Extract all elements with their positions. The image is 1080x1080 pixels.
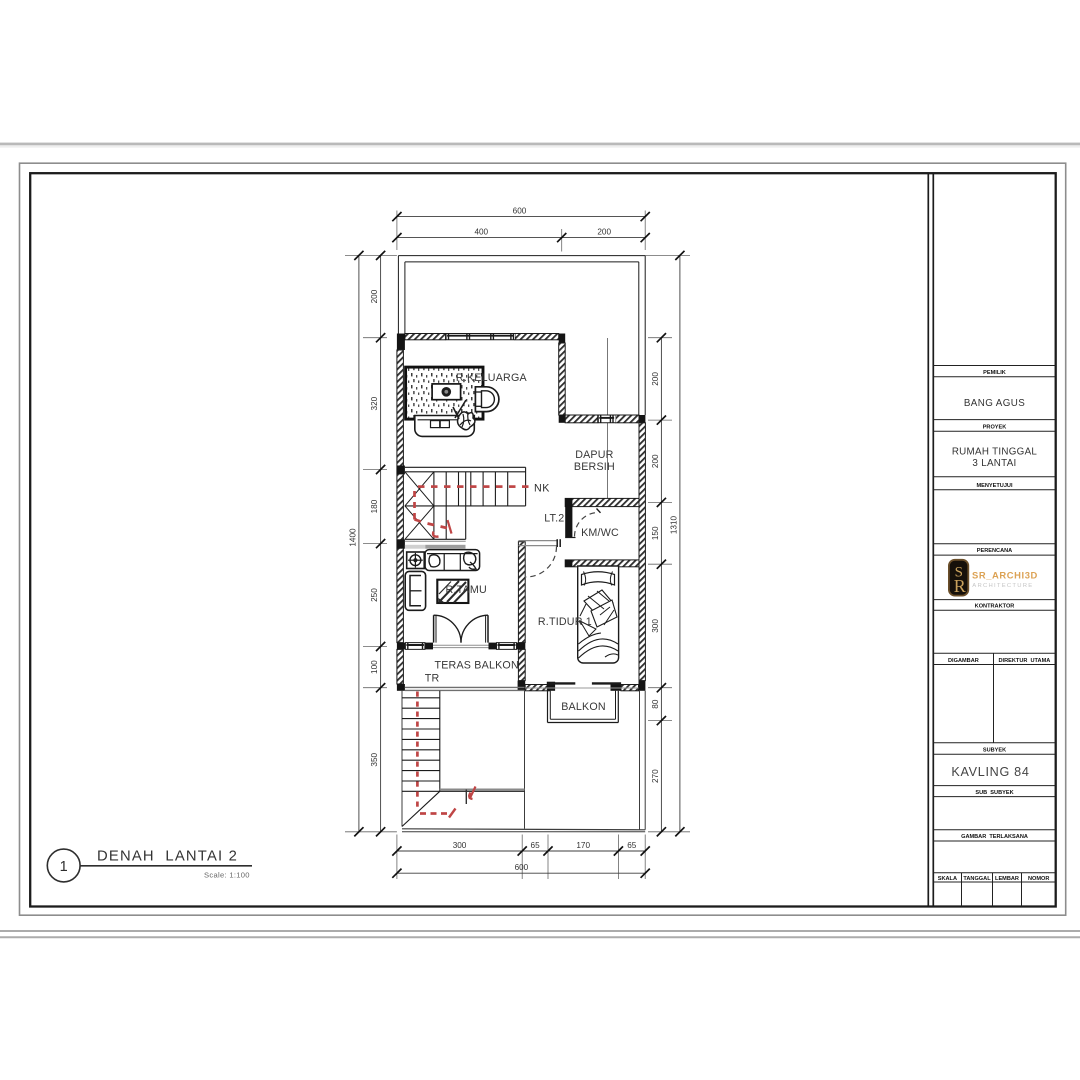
- svg-text:65: 65: [531, 841, 541, 850]
- svg-text:SUB SUBYEK: SUB SUBYEK: [975, 790, 1013, 796]
- svg-text:TERAS BALKON: TERAS BALKON: [435, 660, 519, 672]
- svg-text:SUBYEK: SUBYEK: [983, 748, 1006, 754]
- svg-text:PROYEK: PROYEK: [983, 425, 1007, 431]
- svg-text:BERSIH: BERSIH: [574, 461, 615, 473]
- svg-text:PEMILIK: PEMILIK: [983, 370, 1006, 376]
- svg-text:LEMBAR: LEMBAR: [995, 876, 1019, 882]
- svg-text:NK: NK: [534, 483, 550, 495]
- svg-text:250: 250: [370, 588, 379, 602]
- svg-text:1310: 1310: [670, 515, 679, 534]
- svg-text:1: 1: [60, 859, 68, 875]
- svg-text:200: 200: [651, 454, 660, 468]
- svg-text:RUMAH TINGGAL: RUMAH TINGGAL: [952, 447, 1038, 458]
- svg-text:200: 200: [370, 289, 379, 303]
- svg-text:SKALA: SKALA: [938, 876, 957, 882]
- svg-text:TANGGAL: TANGGAL: [963, 876, 991, 882]
- svg-text:KM/WC: KM/WC: [581, 527, 619, 539]
- svg-text:DAPUR: DAPUR: [575, 449, 613, 461]
- svg-text:300: 300: [651, 619, 660, 633]
- svg-text:LT.2: LT.2: [544, 513, 564, 525]
- svg-text:R.TIDUR 1: R.TIDUR 1: [538, 616, 592, 628]
- svg-text:320: 320: [370, 396, 379, 410]
- svg-text:200: 200: [651, 372, 660, 386]
- svg-text:DIREKTUR UTAMA: DIREKTUR UTAMA: [999, 658, 1051, 664]
- svg-text:600: 600: [513, 206, 527, 215]
- svg-text:65: 65: [627, 841, 637, 850]
- svg-text:KAVLING 84: KAVLING 84: [951, 765, 1029, 779]
- svg-text:170: 170: [576, 841, 590, 850]
- svg-text:80: 80: [651, 699, 660, 709]
- svg-text:180: 180: [370, 499, 379, 513]
- svg-text:Scale: 1:100: Scale: 1:100: [204, 870, 250, 879]
- svg-text:400: 400: [474, 227, 488, 236]
- svg-text:R.KELUARGA: R.KELUARGA: [456, 372, 528, 384]
- svg-text:DENAH LANTAI 2: DENAH LANTAI 2: [97, 849, 238, 865]
- svg-text:R: R: [954, 576, 966, 596]
- svg-text:NOMOR: NOMOR: [1028, 876, 1049, 882]
- svg-text:600: 600: [515, 863, 529, 872]
- svg-text:PERENCANA: PERENCANA: [977, 548, 1012, 554]
- svg-text:200: 200: [597, 227, 611, 236]
- svg-text:TR: TR: [425, 672, 440, 684]
- svg-text:150: 150: [651, 526, 660, 540]
- svg-text:GAMBAR TERLAKSANA: GAMBAR TERLAKSANA: [961, 834, 1028, 840]
- svg-text:270: 270: [651, 769, 660, 783]
- svg-text:R.TAMU: R.TAMU: [446, 584, 487, 596]
- svg-text:BALKON: BALKON: [561, 701, 606, 713]
- svg-text:1400: 1400: [349, 528, 358, 547]
- svg-text:350: 350: [370, 752, 379, 766]
- svg-text:3 LANTAI: 3 LANTAI: [972, 458, 1016, 469]
- svg-text:ARCHITECTURE: ARCHITECTURE: [972, 583, 1033, 589]
- svg-text:SR_ARCHI3D: SR_ARCHI3D: [972, 570, 1038, 581]
- svg-text:MENYETUJUI: MENYETUJUI: [976, 483, 1012, 489]
- svg-text:DIGAMBAR: DIGAMBAR: [948, 658, 979, 664]
- svg-text:BANG AGUS: BANG AGUS: [964, 398, 1025, 409]
- svg-text:300: 300: [453, 841, 467, 850]
- svg-text:100: 100: [370, 660, 379, 674]
- svg-text:KONTRAKTOR: KONTRAKTOR: [975, 604, 1015, 610]
